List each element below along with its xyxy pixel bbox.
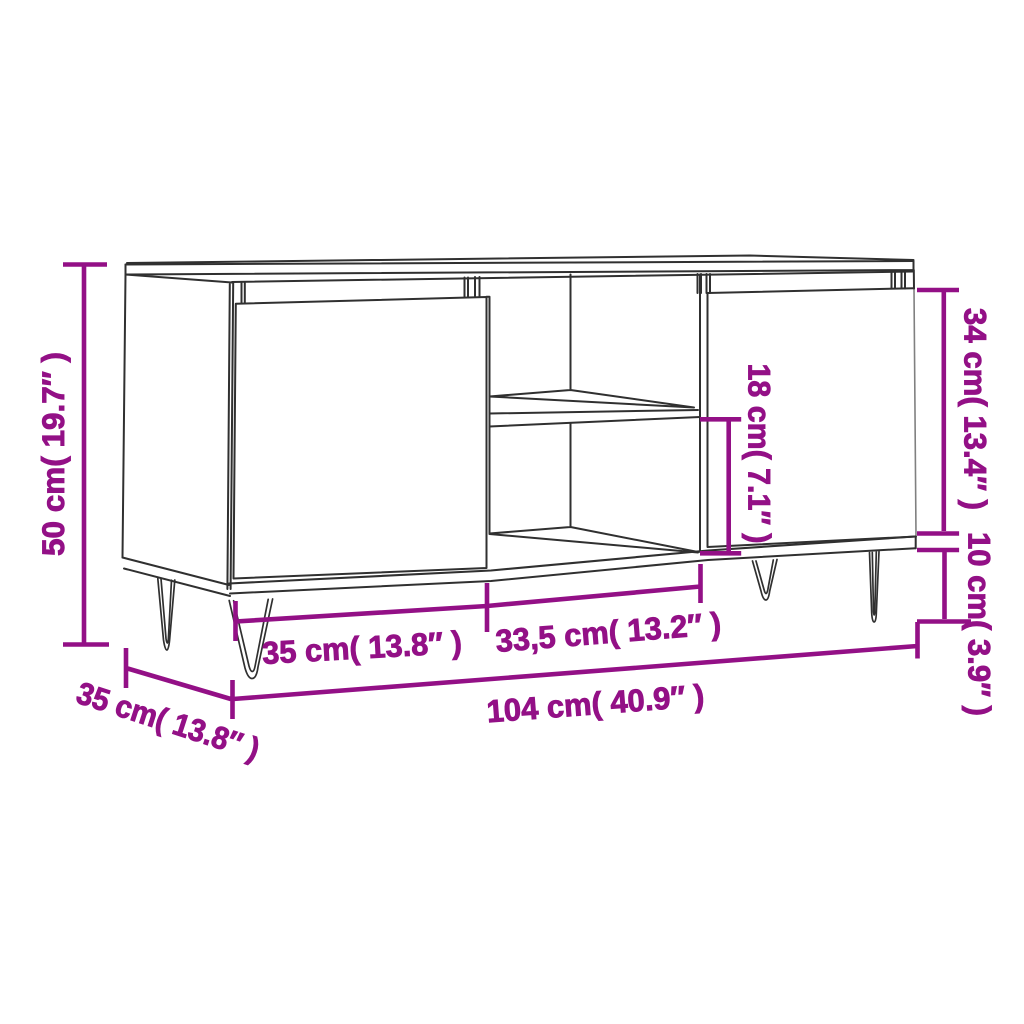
svg-text:18 cm( 7.1″ ): 18 cm( 7.1″ ) xyxy=(742,364,778,544)
svg-text:10 cm( 3.9″ ): 10 cm( 3.9″ ) xyxy=(962,532,998,716)
svg-text:50 cm( 19.7″ ): 50 cm( 19.7″ ) xyxy=(35,352,71,556)
svg-text:34 cm( 13.4″ ): 34 cm( 13.4″ ) xyxy=(958,308,994,510)
